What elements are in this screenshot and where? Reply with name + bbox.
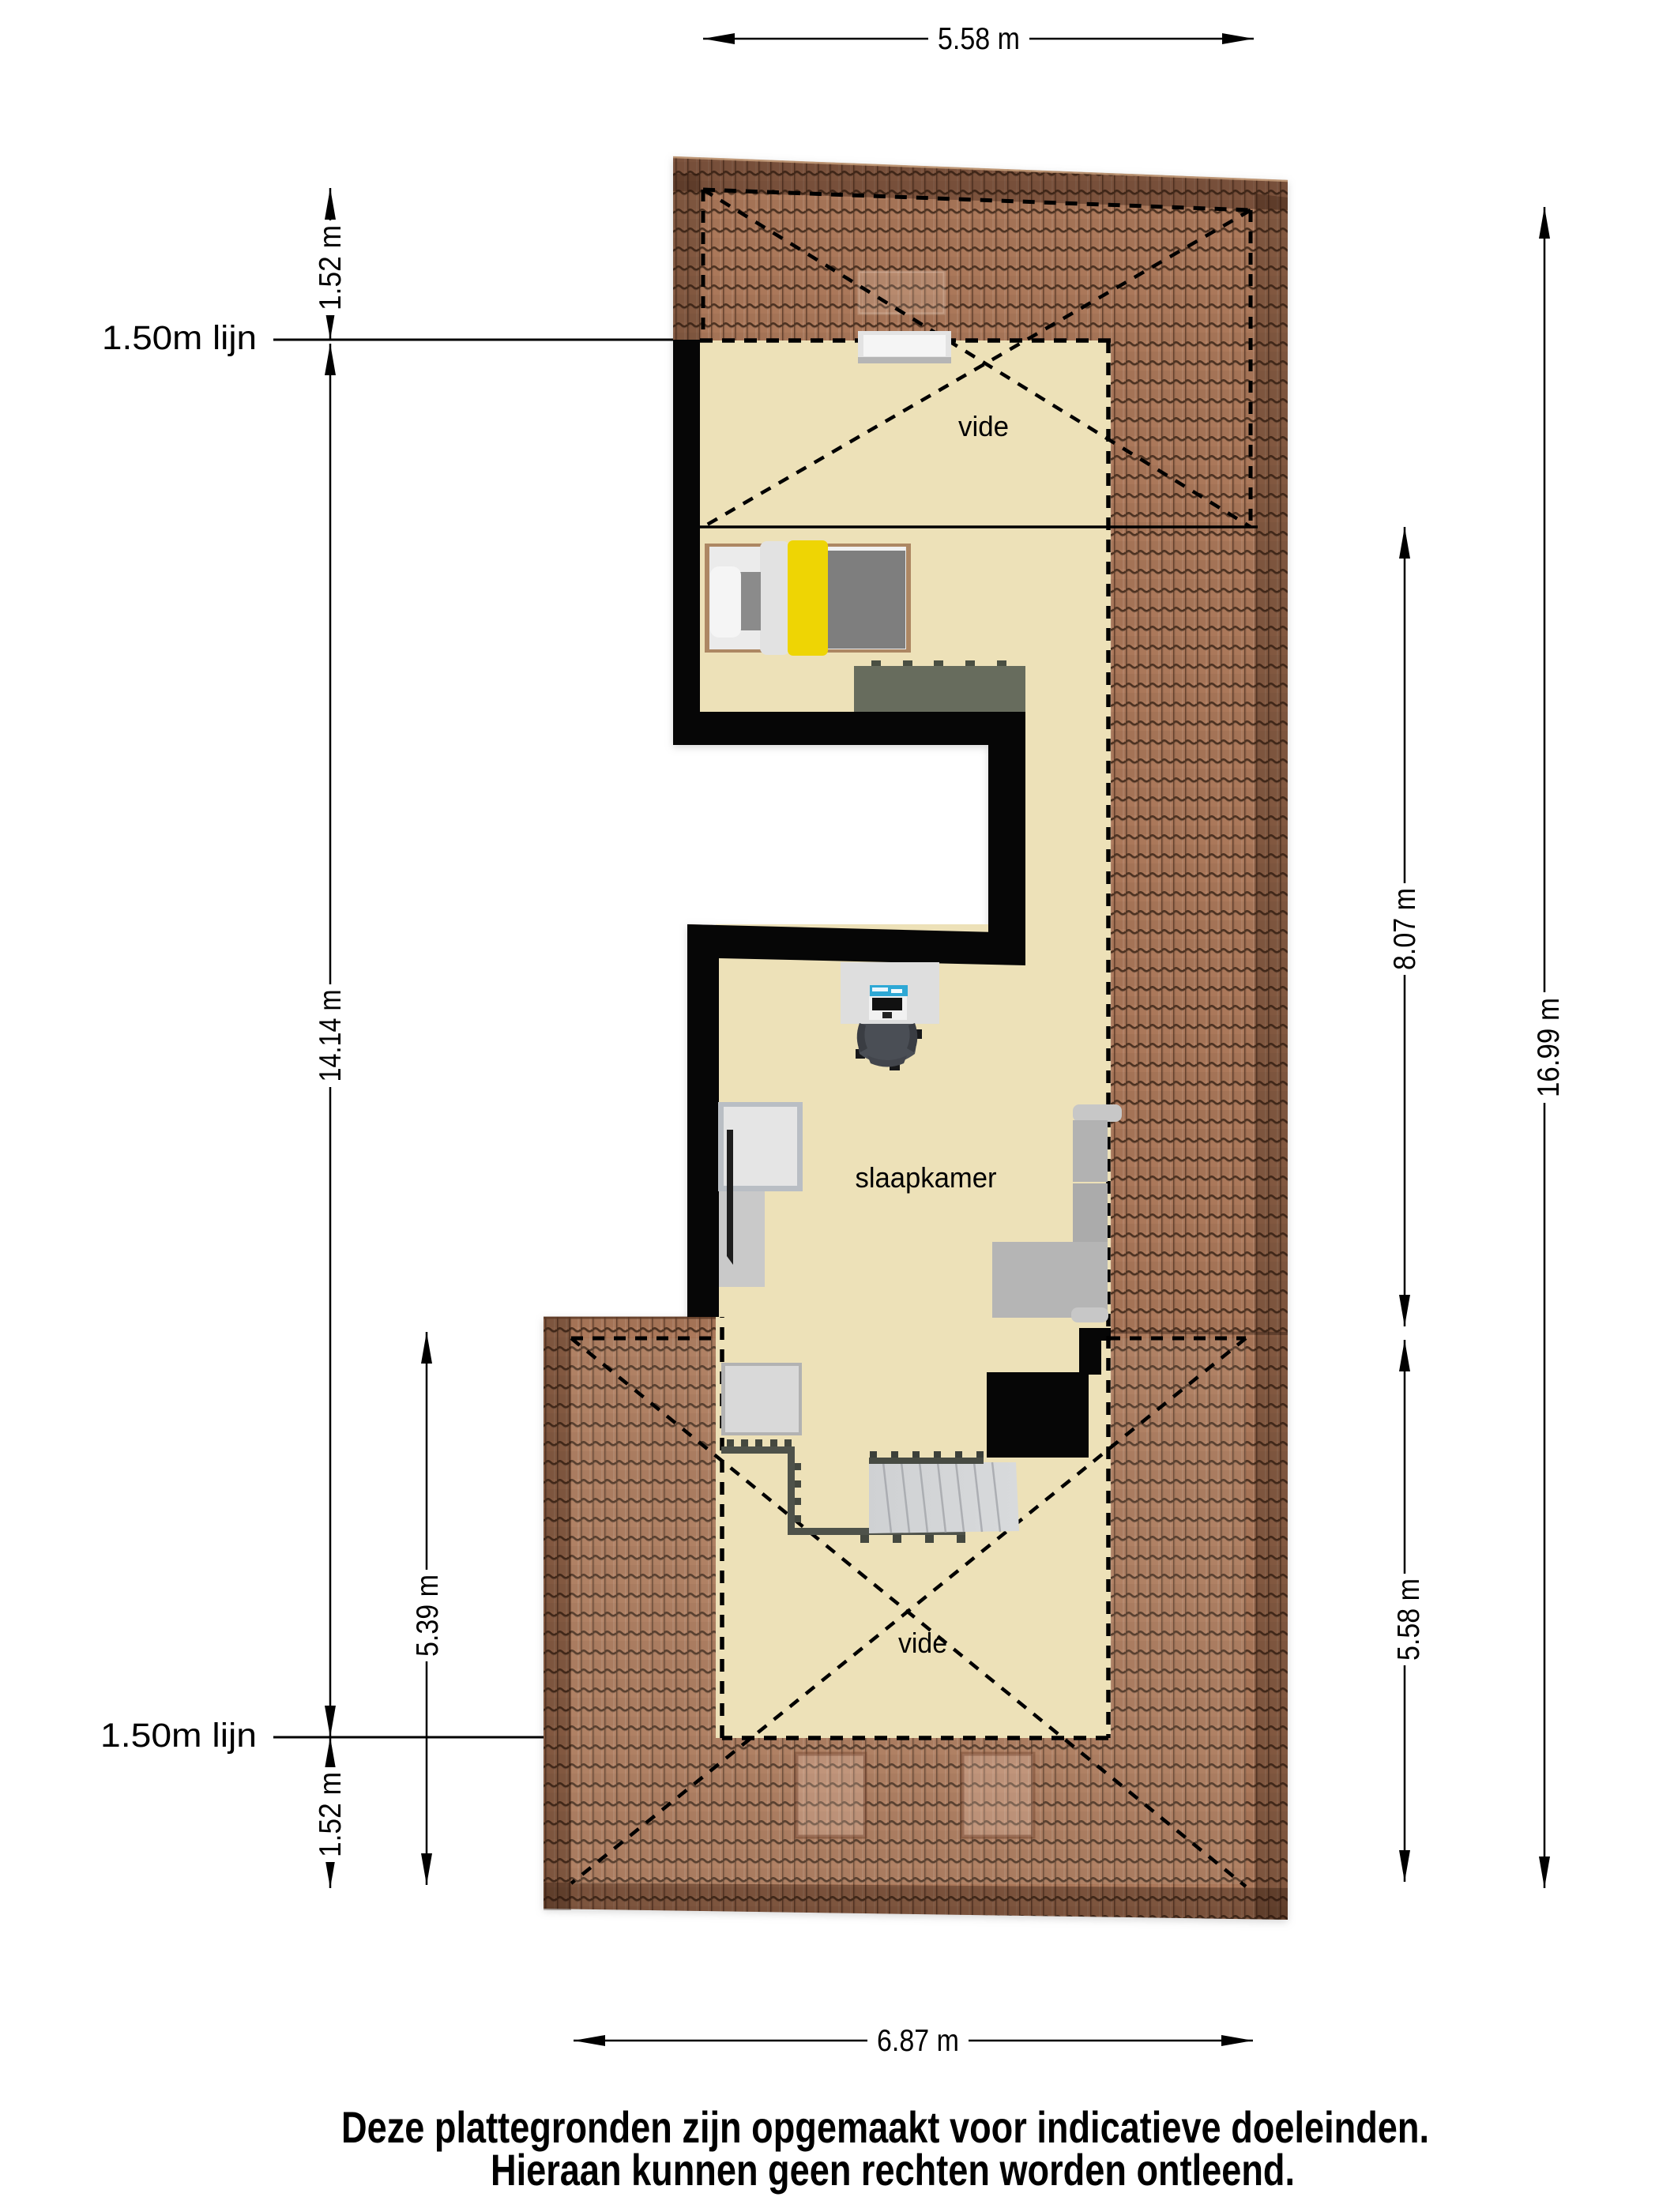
svg-text:vide: vide xyxy=(898,1627,947,1659)
svg-text:1.50m lijn: 1.50m lijn xyxy=(102,319,257,357)
svg-text:5.58 m: 5.58 m xyxy=(938,22,1020,56)
svg-text:slaapkamer: slaapkamer xyxy=(856,1161,997,1194)
svg-text:1.50m lijn: 1.50m lijn xyxy=(100,1717,257,1755)
svg-text:5.58 m: 5.58 m xyxy=(1392,1578,1426,1661)
svg-text:8.07 m: 8.07 m xyxy=(1388,888,1422,970)
svg-text:16.99 m: 16.99 m xyxy=(1532,998,1566,1097)
svg-text:6.87 m: 6.87 m xyxy=(877,2024,959,2058)
svg-text:vide: vide xyxy=(958,410,1009,442)
svg-text:1.52 m: 1.52 m xyxy=(314,1772,348,1857)
svg-text:14.14 m: 14.14 m xyxy=(314,990,348,1082)
svg-text:1.52 m: 1.52 m xyxy=(314,225,348,310)
svg-text:Hieraan kunnen geen rechten wo: Hieraan kunnen geen rechten worden ontle… xyxy=(491,2145,1295,2195)
svg-text:5.39 m: 5.39 m xyxy=(411,1574,445,1657)
